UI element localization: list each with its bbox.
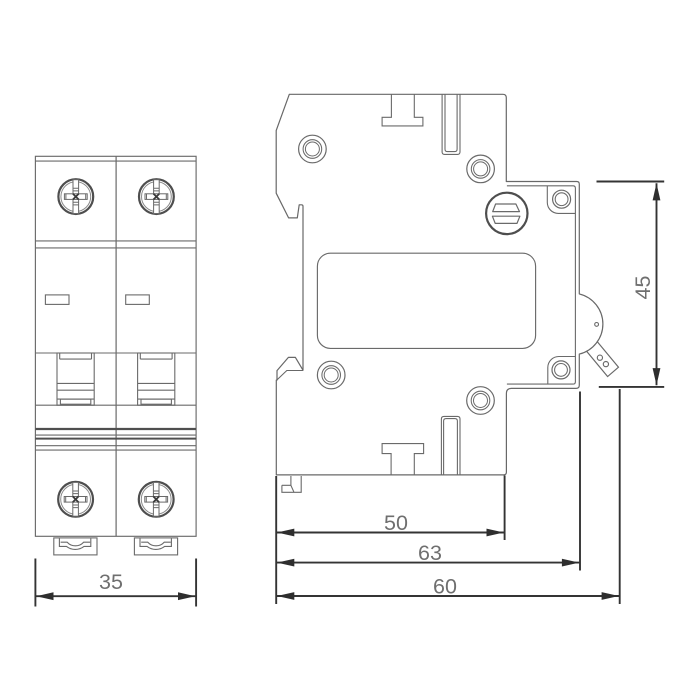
svg-text:35: 35 <box>99 570 123 594</box>
svg-text:45: 45 <box>631 276 655 300</box>
svg-text:50: 50 <box>384 511 408 535</box>
svg-text:63: 63 <box>418 541 442 565</box>
svg-text:60: 60 <box>433 575 457 599</box>
